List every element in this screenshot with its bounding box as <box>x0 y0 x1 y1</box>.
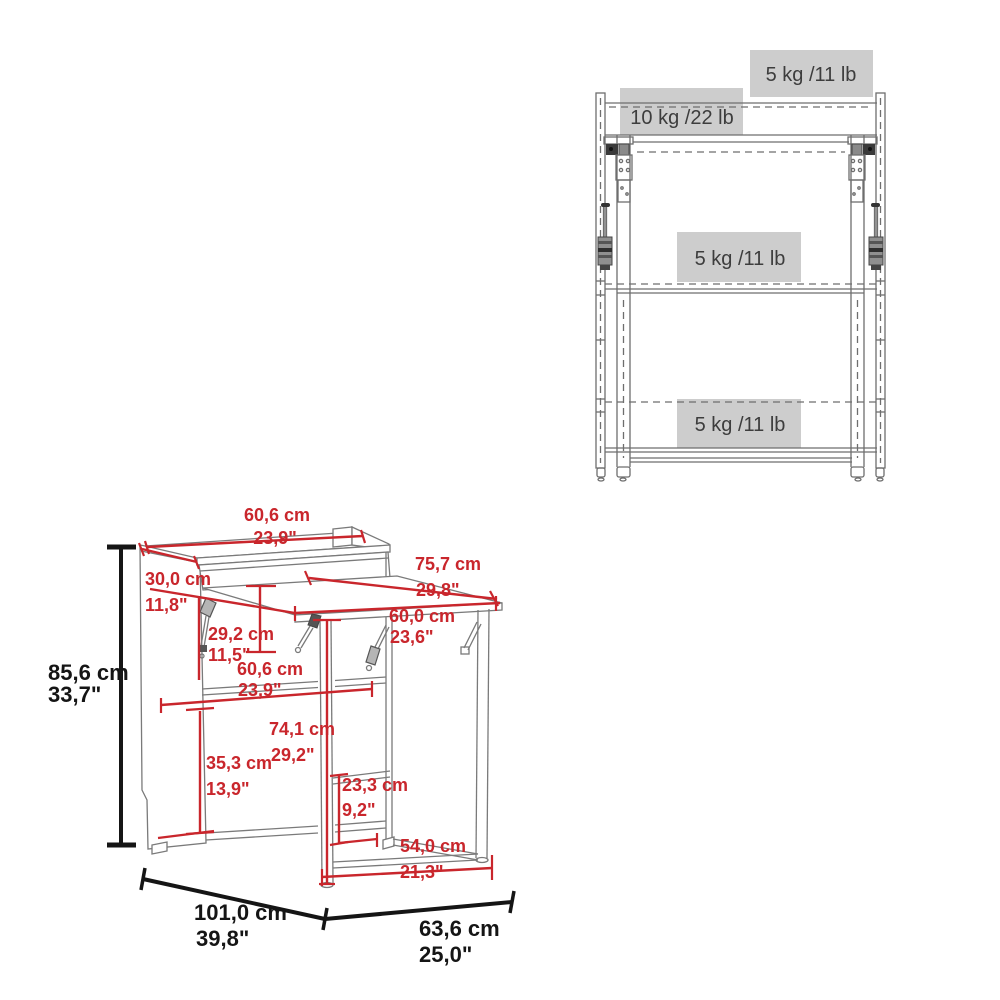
front-right-folded-leg <box>851 135 864 467</box>
capacity-label-middle-shelf: 5 kg /11 lb <box>695 248 786 270</box>
front-folded-desk-edge <box>633 142 849 152</box>
iso-side-panel <box>140 545 206 854</box>
dim-overall-height <box>107 547 136 845</box>
label-overall-depth-in: 39,8" <box>196 926 249 951</box>
front-middle-shelf <box>596 281 885 295</box>
dim-overall-width <box>325 891 514 919</box>
label-stretcher-width-in: 21,3" <box>400 862 444 882</box>
label-panel-depth-cm: 30,0 cm <box>145 569 211 589</box>
label-overall-depth-cm: 101,0 cm <box>194 900 287 925</box>
label-overall-width-cm: 63,6 cm <box>419 916 500 941</box>
label-panel-depth-in: 11,8" <box>145 595 188 615</box>
capacity-label-bottom-shelf: 5 kg /11 lb <box>695 414 786 436</box>
label-stretcher-width-cm: 54,0 cm <box>400 836 466 856</box>
label-desk-width-cm: 60,0 cm <box>389 606 455 626</box>
label-desk-width-in: 23,6" <box>390 627 434 647</box>
capacity-label-upper-shelf: 10 kg /22 lb <box>630 107 733 129</box>
label-desk-height-cm: 74,1 cm <box>269 719 335 739</box>
label-shelf-spacing-cm: 35,3 cm <box>206 753 272 773</box>
front-view: 5 kg /11 lb 10 kg /22 lb 5 kg /11 lb 5 k… <box>596 50 885 481</box>
front-feet <box>597 467 884 481</box>
perspective-view: 60,6 cm 23,9" 75,7 cm 29,8" 30,0 cm 11,8… <box>48 505 514 967</box>
label-desk-depth-in: 29,8" <box>416 580 460 600</box>
label-shelf-width-cm: 60,6 cm <box>237 659 303 679</box>
label-overall-width-in: 25,0" <box>419 942 472 967</box>
capacity-label-top-surface: 5 kg /11 lb <box>766 64 857 86</box>
label-stretcher-height-in: 9,2" <box>342 800 376 820</box>
label-hutch-top-width-cm: 60,6 cm <box>244 505 310 525</box>
label-shelf-width-in: 23,9" <box>238 680 282 700</box>
label-shelf-spacing-in: 13,9" <box>206 779 250 799</box>
iso-middle-shelf <box>202 677 386 695</box>
fold-hinge-hardware-right <box>848 137 883 270</box>
label-hutch-top-width-in: 23,9" <box>253 528 297 548</box>
label-overall-height-in: 33,7" <box>48 682 101 707</box>
label-desk-height-in: 29,2" <box>271 745 315 765</box>
front-left-folded-leg <box>617 135 630 467</box>
iso-bottom-shelf <box>206 821 386 840</box>
fold-hinge-hardware-left <box>598 137 633 270</box>
label-stretcher-height-cm: 23,3 cm <box>342 775 408 795</box>
iso-front-right-leg <box>476 609 489 863</box>
label-bracket-drop-cm: 29,2 cm <box>208 624 274 644</box>
furniture-dimension-diagram: 5 kg /11 lb 10 kg /22 lb 5 kg /11 lb 5 k… <box>0 0 1000 1000</box>
front-bottom-shelf <box>605 448 877 462</box>
diagram-canvas: 5 kg /11 lb 10 kg /22 lb 5 kg /11 lb 5 k… <box>0 0 1000 1000</box>
label-desk-depth-cm: 75,7 cm <box>415 554 481 574</box>
